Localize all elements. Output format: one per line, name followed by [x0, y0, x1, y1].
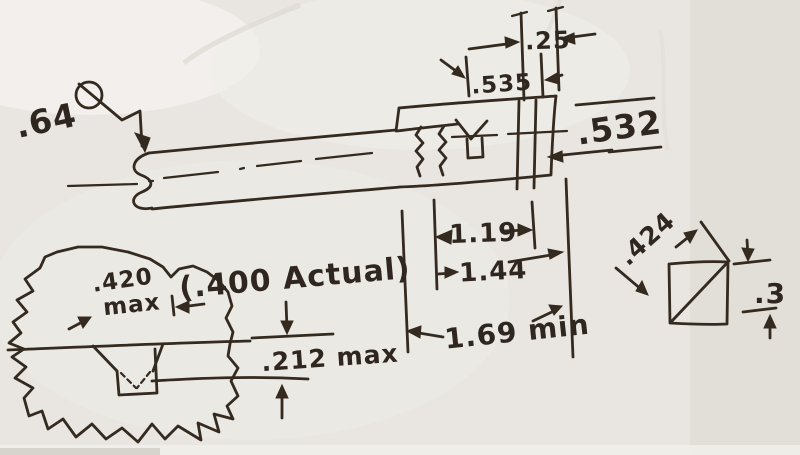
- groove-band-line: [534, 100, 536, 188]
- scanned-sketch-page: .64 .25 .535 .532 1.19 1.44 1.69 min .42…: [0, 0, 800, 455]
- centerline-dot: [240, 168, 244, 169]
- label-length-1: 1.19: [449, 218, 518, 250]
- label-length-2: 1.44: [458, 255, 528, 289]
- paper-edge-smudge: [0, 448, 160, 455]
- label-square-side: .3: [754, 277, 786, 310]
- label-top-width-groove: .535: [471, 69, 533, 99]
- label-top-width-small: .25: [525, 26, 571, 56]
- groove-band-line: [517, 101, 519, 189]
- sketch-canvas: .64 .25 .535 .532 1.19 1.44 1.69 min .42…: [0, 0, 800, 455]
- extension-tick: [541, 54, 543, 97]
- extension-tick: [172, 296, 174, 315]
